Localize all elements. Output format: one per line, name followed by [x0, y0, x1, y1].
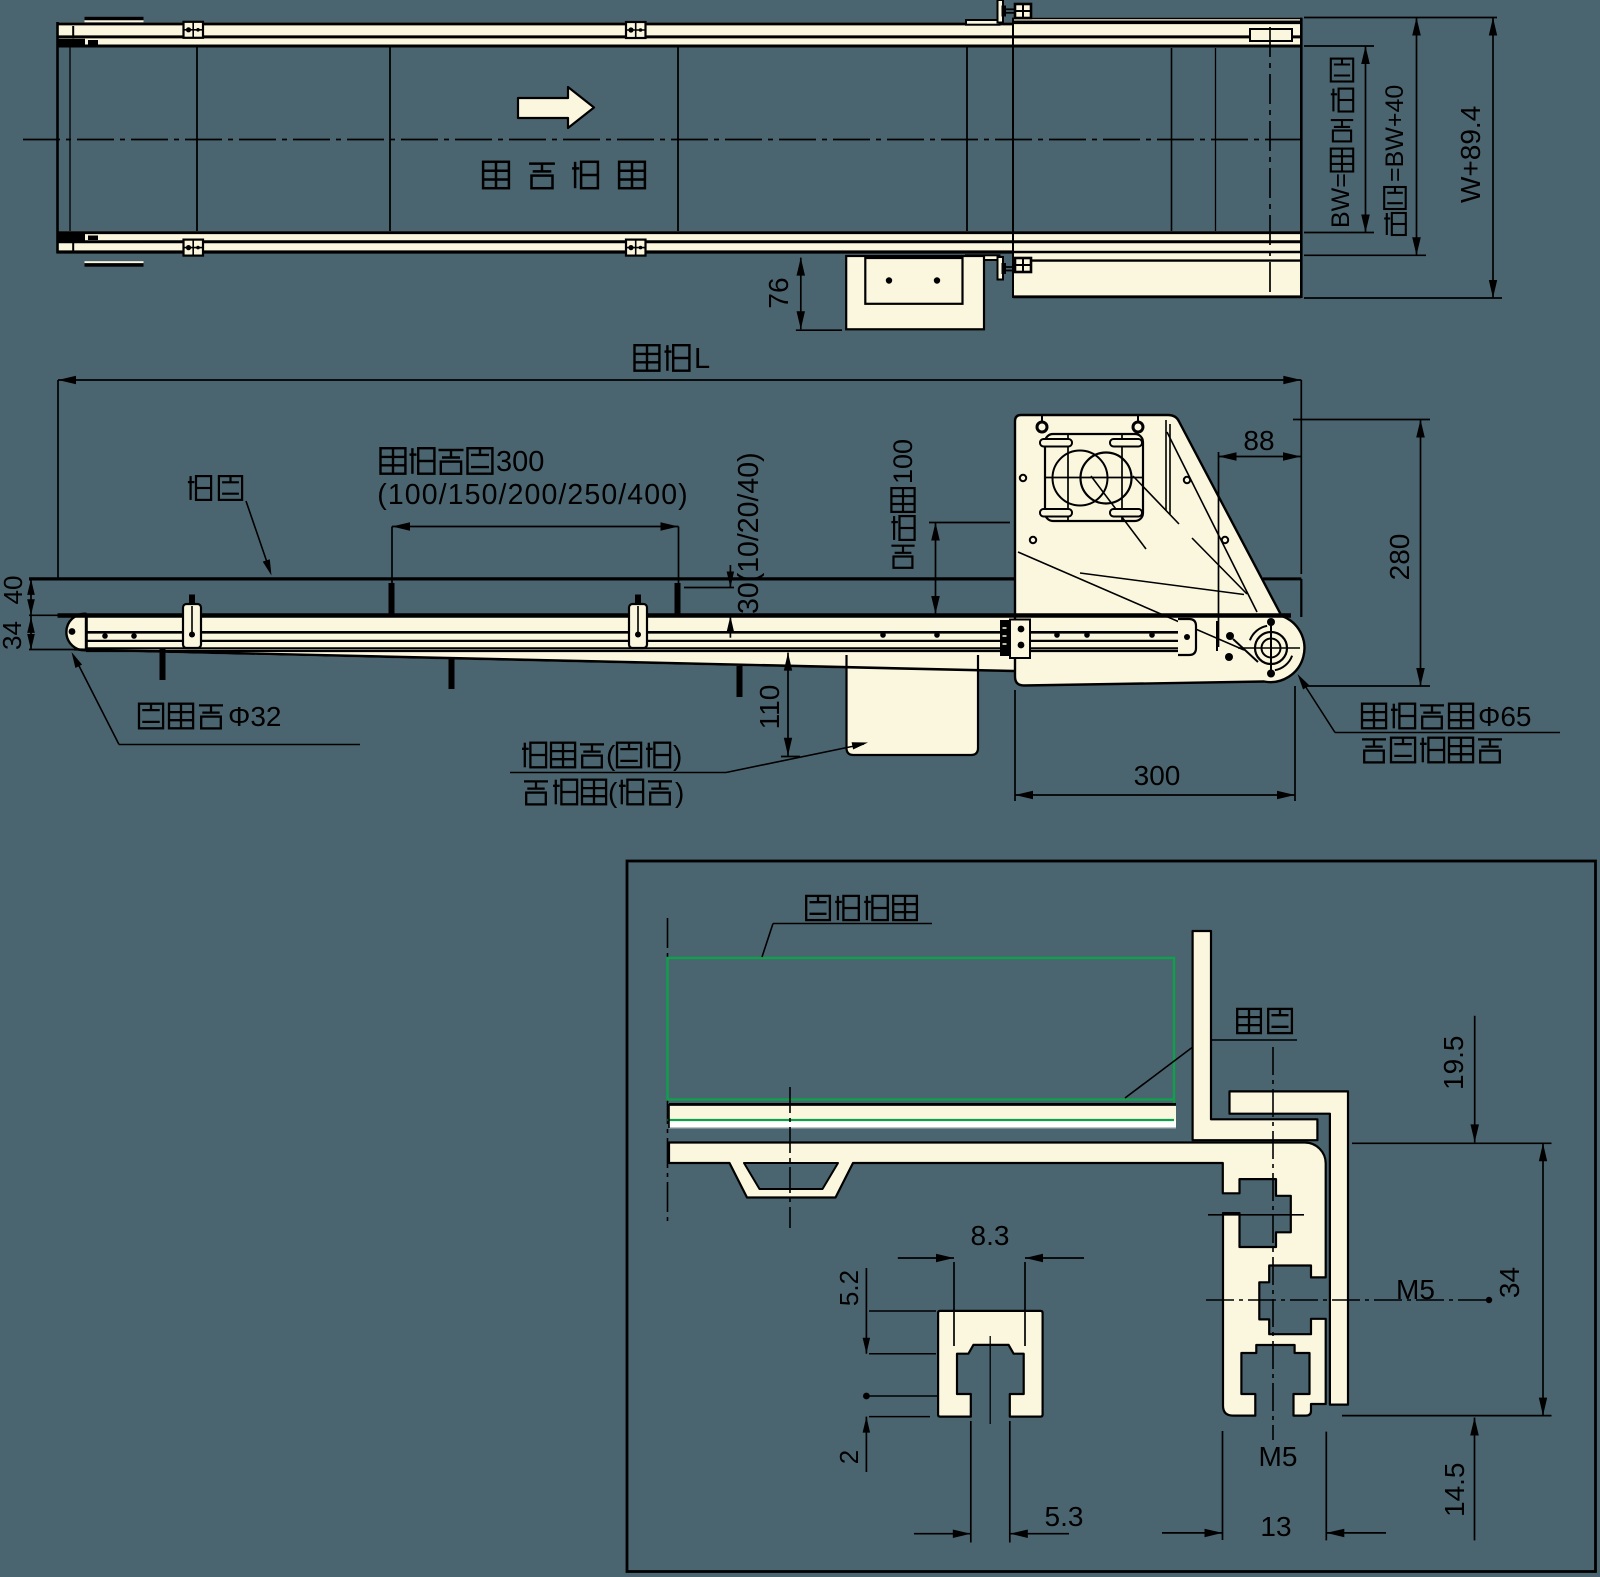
- svg-text:19.5: 19.5: [1438, 1036, 1469, 1091]
- svg-text:76: 76: [763, 277, 794, 308]
- svg-text:13: 13: [1260, 1511, 1291, 1542]
- svg-text:Φ32: Φ32: [228, 701, 281, 732]
- svg-text:=BW+40: =BW+40: [1381, 85, 1409, 182]
- svg-text:88: 88: [1243, 425, 1274, 456]
- svg-text:40: 40: [0, 576, 28, 605]
- svg-text:(: (: [606, 740, 616, 771]
- svg-text:(100/150/200/250/400): (100/150/200/250/400): [377, 479, 689, 511]
- svg-text:M5: M5: [1259, 1441, 1298, 1472]
- svg-text:34: 34: [0, 621, 27, 650]
- svg-text:8.3: 8.3: [971, 1220, 1010, 1251]
- svg-text:14.5: 14.5: [1439, 1463, 1470, 1518]
- svg-text:): ): [673, 740, 682, 771]
- svg-text:280: 280: [1384, 534, 1415, 581]
- svg-text:34: 34: [1494, 1267, 1525, 1298]
- svg-text:5.2: 5.2: [834, 1270, 864, 1306]
- svg-text:M5: M5: [1396, 1274, 1435, 1305]
- svg-text:(: (: [608, 777, 618, 808]
- svg-text:W+89.4: W+89.4: [1455, 106, 1486, 203]
- svg-text:L: L: [694, 343, 710, 375]
- svg-text:BW=: BW=: [1327, 173, 1355, 228]
- svg-text:300: 300: [1134, 760, 1181, 791]
- svg-text:30(10/20/40): 30(10/20/40): [733, 452, 765, 614]
- svg-text:100: 100: [888, 439, 918, 484]
- svg-text:5.3: 5.3: [1045, 1501, 1084, 1532]
- svg-text:2: 2: [834, 1450, 864, 1464]
- svg-text:110: 110: [754, 685, 785, 730]
- svg-text:300: 300: [496, 446, 544, 478]
- svg-text:Φ65: Φ65: [1478, 701, 1531, 732]
- svg-text:): ): [675, 777, 684, 808]
